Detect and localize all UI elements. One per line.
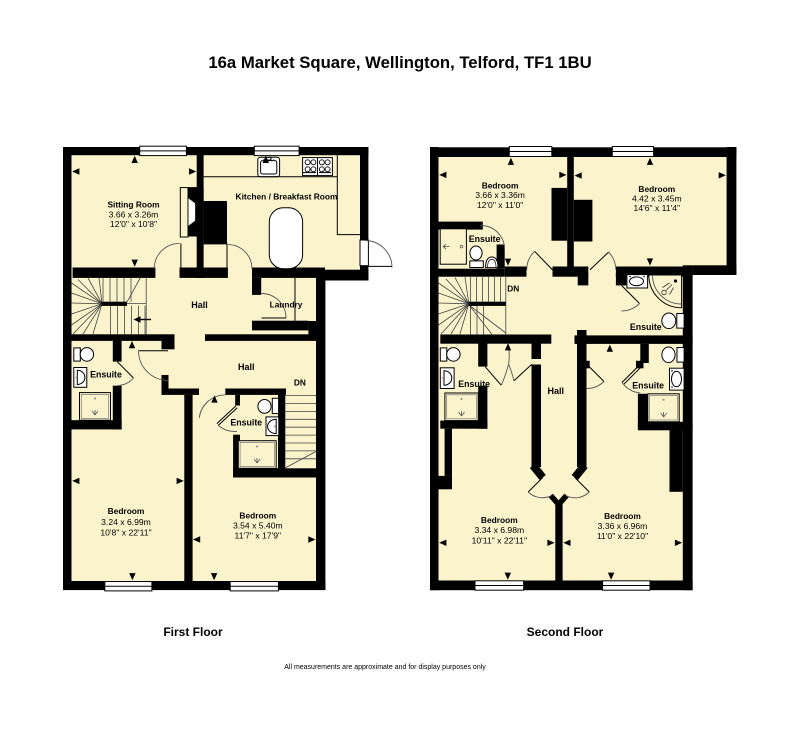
svg-text:12'0" x 11'0": 12'0" x 11'0" [477, 200, 524, 210]
svg-text:Hall: Hall [238, 362, 255, 372]
svg-text:Bedroom: Bedroom [604, 511, 641, 521]
svg-text:Ensuite: Ensuite [632, 380, 664, 390]
svg-text:3.66 x 3.36m: 3.66 x 3.36m [475, 190, 525, 200]
svg-text:16a Market Square, Wellington,: 16a Market Square, Wellington, Telford, … [208, 53, 591, 72]
svg-text:Sitting Room: Sitting Room [107, 200, 159, 210]
svg-text:Ensuite: Ensuite [458, 379, 490, 389]
svg-text:Kitchen / Breakfast Room: Kitchen / Breakfast Room [236, 191, 338, 201]
svg-text:Bedroom: Bedroom [481, 515, 518, 525]
svg-text:Bedroom: Bedroom [638, 184, 675, 194]
svg-text:10'11" x 22'11": 10'11" x 22'11" [472, 535, 527, 545]
svg-text:12'0" x 10'8": 12'0" x 10'8" [110, 219, 157, 229]
svg-text:10'8" x 22'11": 10'8" x 22'11" [100, 528, 151, 538]
svg-text:3.24 x 6.99m: 3.24 x 6.99m [101, 517, 151, 527]
svg-text:Ensuite: Ensuite [90, 369, 122, 379]
svg-text:11'7" x 17'9": 11'7" x 17'9" [235, 531, 282, 541]
svg-text:11'0" x 22'10": 11'0" x 22'10" [597, 531, 648, 541]
svg-text:Hall: Hall [548, 386, 565, 396]
svg-text:14'6" x 11'4": 14'6" x 11'4" [634, 203, 681, 213]
svg-text:All measurements are approxima: All measurements are approximate and for… [284, 664, 486, 671]
svg-text:3.54 x 5.40m: 3.54 x 5.40m [233, 521, 283, 531]
svg-text:Ensuite: Ensuite [630, 322, 662, 332]
svg-text:3.36 x 6.96m: 3.36 x 6.96m [598, 521, 648, 531]
svg-text:Hall: Hall [191, 300, 208, 310]
svg-text:4.42 x 3.45m: 4.42 x 3.45m [632, 193, 682, 203]
svg-text:3.34 x 6.98m: 3.34 x 6.98m [474, 525, 524, 535]
svg-text:Bedroom: Bedroom [239, 511, 276, 521]
svg-text:Laundry: Laundry [270, 299, 303, 309]
svg-text:DN: DN [294, 378, 306, 388]
svg-text:Second Floor: Second Floor [527, 625, 604, 639]
svg-text:Ensuite: Ensuite [469, 234, 501, 244]
svg-text:3.66 x 3.26m: 3.66 x 3.26m [109, 209, 159, 219]
svg-text:Bedroom: Bedroom [108, 506, 145, 516]
svg-text:First Floor: First Floor [163, 625, 223, 639]
svg-text:DN: DN [507, 283, 519, 293]
svg-text:Ensuite: Ensuite [230, 418, 262, 428]
